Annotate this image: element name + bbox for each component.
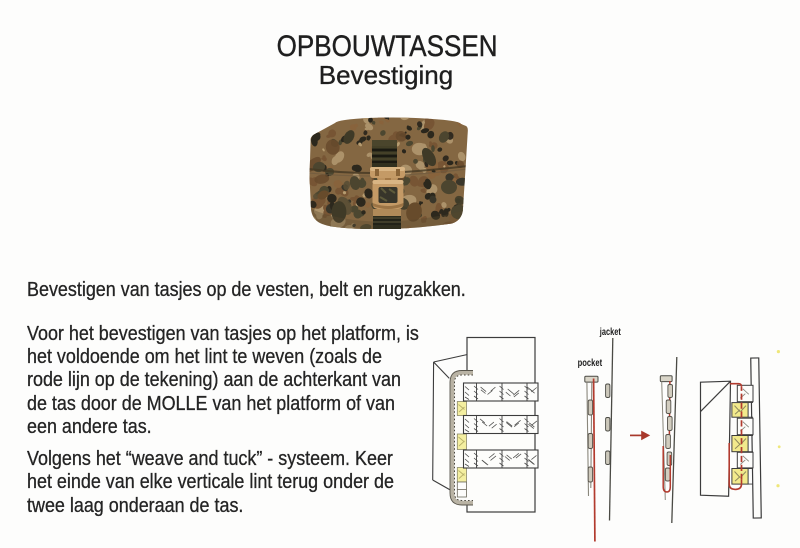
- svg-text:pocket: pocket: [578, 358, 603, 369]
- svg-text:jacket: jacket: [599, 327, 621, 338]
